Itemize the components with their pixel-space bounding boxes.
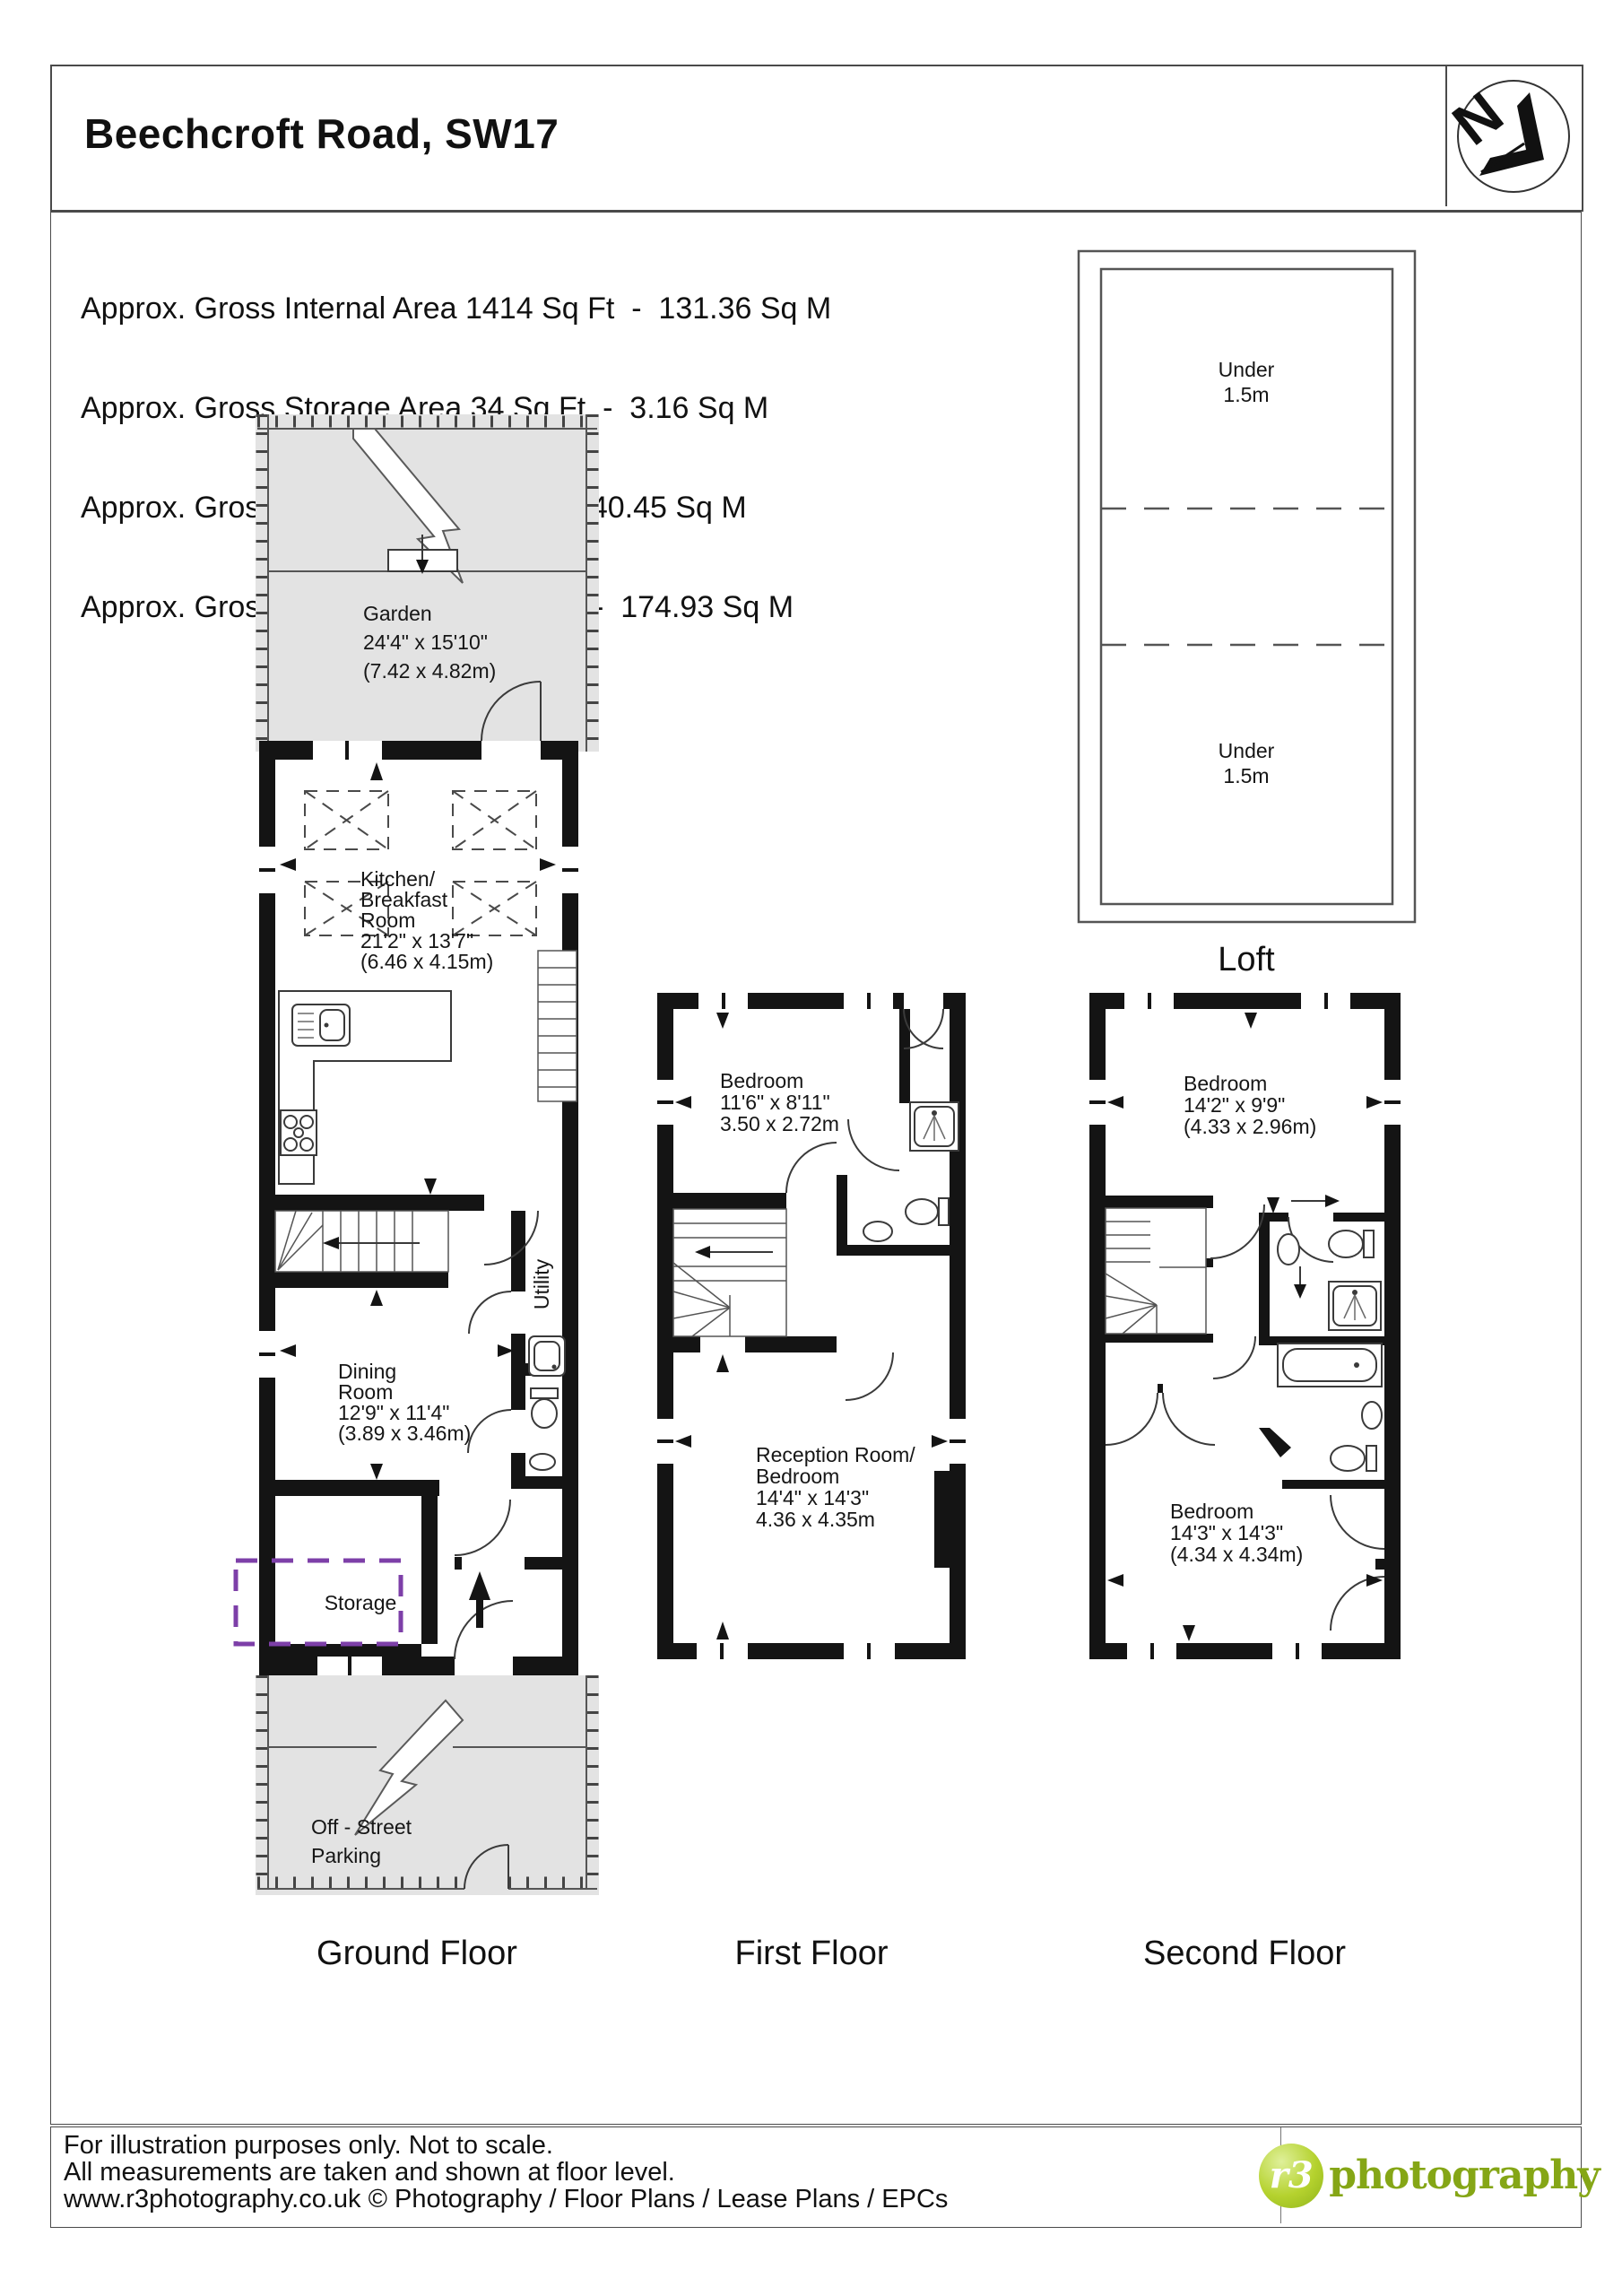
loft-title: Loft bbox=[1218, 941, 1275, 978]
basin-icon bbox=[530, 1454, 555, 1470]
svg-text:(3.89 x 3.46m): (3.89 x 3.46m) bbox=[338, 1422, 471, 1445]
svg-text:14'4" x 14'3": 14'4" x 14'3" bbox=[756, 1486, 869, 1509]
washer-icon bbox=[529, 1336, 565, 1376]
entrance-arrow-icon bbox=[469, 1571, 490, 1628]
svg-text:14'3" x 14'3": 14'3" x 14'3" bbox=[1170, 1521, 1283, 1544]
first-floor-plan: Bedroom 11'6" x 8'11" 3.50 x 2.72m Recep… bbox=[657, 993, 966, 1972]
hob-icon bbox=[281, 1110, 317, 1155]
loft-plan: Under 1.5m Under 1.5m Loft bbox=[1079, 251, 1415, 978]
svg-text:4.36 x 4.35m: 4.36 x 4.35m bbox=[756, 1508, 875, 1531]
shower-icon bbox=[1329, 1282, 1381, 1330]
stairs bbox=[275, 1211, 448, 1272]
stairs bbox=[1106, 1208, 1206, 1334]
basin-icon bbox=[863, 1222, 892, 1241]
floor-title-ground: Ground Floor bbox=[317, 1935, 517, 1972]
svg-text:Parking: Parking bbox=[311, 1844, 381, 1867]
toilet-icon bbox=[906, 1198, 949, 1225]
basin-icon bbox=[1278, 1234, 1299, 1265]
svg-text:(7.42 x 4.82m): (7.42 x 4.82m) bbox=[363, 659, 496, 683]
sink-icon bbox=[292, 1004, 350, 1046]
floor-title-first: First Floor bbox=[735, 1935, 889, 1972]
room-label-bedroom1: Bedroom bbox=[720, 1069, 803, 1092]
room-label-utility: Utility bbox=[530, 1258, 553, 1309]
toilet-icon bbox=[1329, 1231, 1374, 1257]
svg-text:3.50 x 2.72m: 3.50 x 2.72m bbox=[720, 1112, 839, 1135]
floorplan-page: Beechcroft Road, SW17 Approx. Gross Inte… bbox=[0, 0, 1622, 2296]
toilet-icon bbox=[531, 1388, 558, 1428]
stairs bbox=[673, 1209, 786, 1336]
svg-text:(4.34 x 4.34m): (4.34 x 4.34m) bbox=[1170, 1543, 1303, 1566]
svg-text:Bedroom: Bedroom bbox=[756, 1465, 839, 1488]
room-label-bedroom2: Bedroom bbox=[1184, 1072, 1267, 1095]
svg-text:1.5m: 1.5m bbox=[1223, 383, 1269, 406]
loft-under-label: Under bbox=[1219, 739, 1275, 762]
stairs bbox=[538, 951, 577, 1101]
loft-under-label: Under bbox=[1219, 358, 1275, 381]
north-arrow-icon: N bbox=[1440, 79, 1569, 192]
svg-text:(4.33 x 2.96m): (4.33 x 2.96m) bbox=[1184, 1115, 1316, 1138]
room-label-storage: Storage bbox=[325, 1591, 397, 1614]
basin-icon bbox=[1362, 1402, 1382, 1429]
svg-text:1.5m: 1.5m bbox=[1223, 764, 1269, 787]
svg-text:24'4" x 15'10": 24'4" x 15'10" bbox=[363, 631, 488, 654]
floor-title-second: Second Floor bbox=[1143, 1935, 1346, 1972]
room-label-parking: Off - Street bbox=[311, 1815, 412, 1839]
bath-icon bbox=[1278, 1344, 1382, 1387]
svg-text:11'6" x 8'11": 11'6" x 8'11" bbox=[720, 1091, 830, 1114]
second-floor-plan: Bedroom 14'2" x 9'9" (4.33 x 2.96m) Bedr… bbox=[1089, 993, 1401, 1972]
room-label-reception: Reception Room/ bbox=[756, 1443, 915, 1466]
doors bbox=[455, 682, 541, 1659]
room-label-garden: Garden bbox=[363, 602, 432, 625]
parking-area bbox=[256, 1675, 599, 1895]
svg-text:14'2" x 9'9": 14'2" x 9'9" bbox=[1184, 1093, 1285, 1117]
room-label-bedroom3: Bedroom bbox=[1170, 1500, 1253, 1523]
skylight-icon bbox=[305, 791, 536, 935]
ground-floor-plan: Utility bbox=[236, 414, 599, 1972]
svg-text:(6.46 x 4.15m): (6.46 x 4.15m) bbox=[360, 950, 493, 973]
toilet-icon bbox=[1331, 1446, 1376, 1471]
floorplan-drawing: N Under 1.5m Under 1.5m Loft bbox=[0, 0, 1622, 2296]
garden-area bbox=[256, 414, 599, 752]
shower-icon bbox=[910, 1102, 958, 1151]
